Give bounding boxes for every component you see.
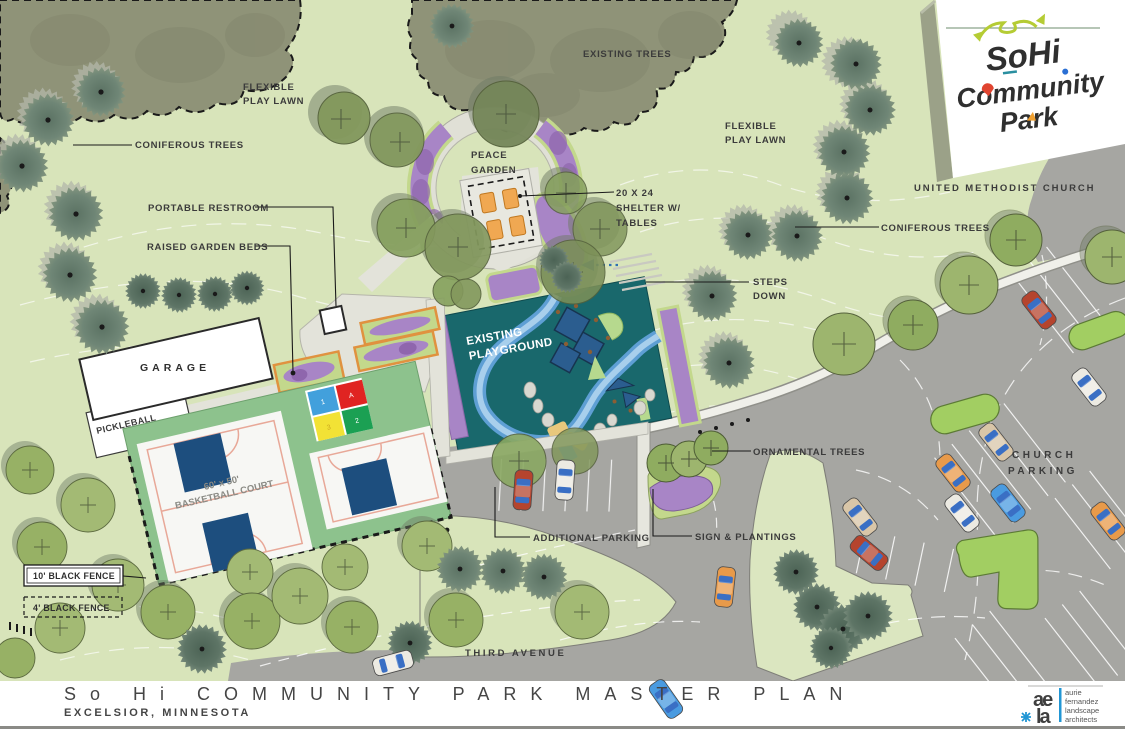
svg-text:FLEXIBLE: FLEXIBLE (243, 82, 295, 93)
svg-text:So Hi COMMUNITY PARK MASTER PL: So Hi COMMUNITY PARK MASTER PLAN (64, 684, 856, 704)
svg-text:PORTABLE RESTROOM: PORTABLE RESTROOM (148, 203, 269, 214)
svg-text:CONIFEROUS TREES: CONIFEROUS TREES (135, 140, 244, 151)
svg-text:SHELTER W/: SHELTER W/ (616, 203, 681, 214)
svg-text:ORNAMENTAL TREES: ORNAMENTAL TREES (753, 447, 865, 458)
svg-text:10' BLACK FENCE: 10' BLACK FENCE (33, 571, 115, 581)
svg-text:20 X 24: 20 X 24 (616, 188, 654, 199)
svg-text:THIRD AVENUE: THIRD AVENUE (465, 648, 566, 659)
svg-text:FLEXIBLE: FLEXIBLE (725, 121, 777, 132)
svg-text:EXISTING TREES: EXISTING TREES (583, 49, 671, 60)
svg-text:architects: architects (1065, 715, 1097, 724)
svg-text:fernandez: fernandez (1065, 697, 1099, 706)
svg-text:PARKING: PARKING (1008, 466, 1078, 477)
svg-text:RAISED GARDEN BEDS: RAISED GARDEN BEDS (147, 242, 268, 253)
svg-text:GARAGE: GARAGE (140, 362, 210, 374)
svg-text:GARDEN: GARDEN (471, 165, 516, 176)
svg-text:landscape: landscape (1065, 706, 1099, 715)
svg-text:PLAY LAWN: PLAY LAWN (725, 135, 786, 146)
svg-text:PLAY LAWN: PLAY LAWN (243, 96, 304, 107)
svg-text:STEPS: STEPS (753, 277, 788, 288)
svg-text:TABLES: TABLES (616, 218, 658, 229)
svg-text:DOWN: DOWN (753, 291, 786, 302)
svg-text:EXCELSIOR, MINNESOTA: EXCELSIOR, MINNESOTA (64, 707, 251, 719)
svg-text:CONIFEROUS TREES: CONIFEROUS TREES (881, 223, 990, 234)
svg-text:aurie: aurie (1065, 688, 1082, 697)
svg-text:SIGN & PLANTINGS: SIGN & PLANTINGS (695, 532, 796, 543)
svg-text:CHURCH: CHURCH (1012, 450, 1076, 461)
svg-text:ADDITIONAL PARKING: ADDITIONAL PARKING (533, 533, 650, 544)
svg-text:4' BLACK FENCE: 4' BLACK FENCE (33, 603, 110, 613)
svg-text:UNITED METHODIST CHURCH: UNITED METHODIST CHURCH (914, 183, 1095, 194)
svg-text:PEACE: PEACE (471, 150, 507, 161)
